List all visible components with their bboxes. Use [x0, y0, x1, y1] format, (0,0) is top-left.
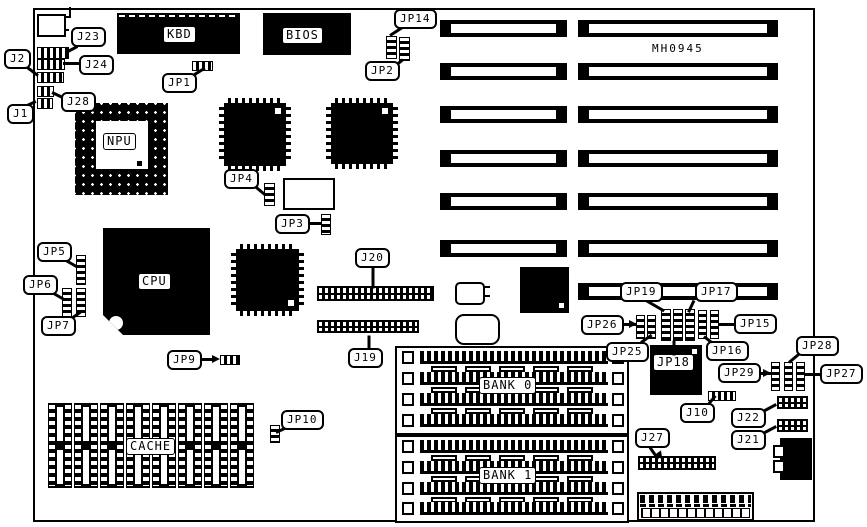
qfp-chip	[231, 244, 304, 316]
isa-slot	[440, 193, 567, 210]
header-jp9	[220, 355, 240, 365]
isa-slot	[578, 240, 778, 257]
leader-line	[673, 341, 676, 356]
leader-line	[372, 268, 375, 289]
isa-slot	[578, 63, 778, 80]
header-j24	[37, 59, 65, 70]
qfp-chip	[219, 98, 291, 171]
jumper-jp10	[270, 425, 280, 443]
jumper-jp18	[673, 309, 683, 341]
header-j20	[317, 286, 434, 301]
isa-slot	[440, 150, 567, 167]
cache-socket	[48, 403, 72, 488]
callout-j23: J23	[71, 27, 106, 47]
kbd-dashed-stripe	[119, 15, 238, 17]
callout-jp5: JP5	[37, 242, 72, 262]
din-lead-line	[69, 7, 71, 18]
leader-line	[804, 373, 820, 376]
isa-slot	[440, 20, 567, 37]
cache-label: CACHE	[126, 438, 175, 455]
callout-jp27: JP27	[820, 364, 863, 384]
cache-socket	[74, 403, 98, 488]
jumper-jp29	[771, 362, 780, 391]
leader-arrowhead	[212, 355, 220, 363]
cache-socket	[100, 403, 124, 488]
header-j2	[37, 72, 64, 83]
din-tab	[773, 445, 785, 458]
jumper-jp4	[264, 183, 275, 206]
callout-j27: J27	[635, 428, 670, 448]
jumper-jp16	[698, 310, 707, 339]
callout-jp3: JP3	[275, 214, 310, 234]
isa-slot	[440, 240, 567, 257]
isa-slot	[440, 106, 567, 123]
leader-line	[310, 222, 322, 225]
jumper-jp19	[661, 309, 671, 341]
callout-j24: J24	[79, 55, 114, 75]
board-model-number: MH0945	[652, 42, 704, 55]
callout-jp6: JP6	[23, 275, 58, 295]
callout-j1: J1	[7, 104, 34, 124]
motherboard-diagram: KBD BIOS MH0945 NPU	[0, 0, 867, 527]
callout-j2: J2	[4, 49, 31, 69]
crystal	[455, 282, 485, 305]
callout-jp2: JP2	[365, 61, 400, 81]
callout-jp1: JP1	[162, 73, 197, 93]
npu-pin1-marker	[137, 161, 142, 166]
jumper-jp14	[386, 36, 397, 59]
component-outline	[455, 314, 500, 345]
callout-jp4: JP4	[224, 169, 259, 189]
callout-jp10: JP10	[281, 410, 324, 430]
cache-socket	[230, 403, 254, 488]
callout-j20: J20	[355, 248, 390, 268]
callout-jp7: JP7	[41, 316, 76, 336]
leader-arrowhead	[763, 369, 771, 377]
isa-slot	[578, 20, 778, 37]
callout-jp28: JP28	[796, 336, 839, 356]
callout-jp29: JP29	[718, 363, 761, 383]
jumper-jp2	[399, 37, 410, 61]
isa-slot	[578, 150, 778, 167]
jumper-jp15	[710, 310, 719, 339]
callout-jp19: JP19	[620, 282, 663, 302]
jp18-chip-label: JP18	[653, 354, 694, 371]
header-j27	[638, 456, 716, 470]
oscillator	[283, 178, 335, 210]
jumper-jp5	[76, 255, 86, 285]
isa-slot	[578, 193, 778, 210]
bank1-label: BANK 1	[479, 467, 536, 484]
jumper-jp17	[685, 309, 695, 341]
cpu-label: CPU	[138, 273, 171, 290]
plcc-chip	[520, 267, 569, 313]
bank0-label: BANK 0	[479, 377, 536, 394]
callout-j19: J19	[348, 348, 383, 368]
keyboard-din-symbol	[37, 14, 66, 37]
din-tab	[773, 460, 785, 473]
callout-jp25: JP25	[606, 342, 649, 362]
bios-chip-label: BIOS	[282, 27, 323, 44]
header-j22	[777, 396, 808, 409]
callout-jp9: JP9	[167, 350, 202, 370]
cache-socket	[204, 403, 228, 488]
cache-socket	[178, 403, 202, 488]
npu-label: NPU	[103, 133, 136, 150]
header-j21	[777, 419, 808, 432]
callout-j22: J22	[731, 408, 766, 428]
callout-j28: J28	[61, 92, 96, 112]
qfp-chip	[326, 98, 398, 169]
leader-line	[63, 62, 79, 65]
callout-j10: J10	[680, 403, 715, 423]
jumper-jp6	[62, 288, 72, 317]
callout-j21: J21	[731, 430, 766, 450]
jumper-jp3	[321, 214, 331, 235]
jumper-jp26	[636, 315, 645, 339]
isa-slot	[440, 63, 567, 80]
leader-line	[719, 323, 734, 326]
kbd-chip-label: KBD	[163, 26, 196, 43]
callout-jp14: JP14	[394, 9, 437, 29]
header-j1	[37, 98, 53, 109]
callout-jp15: JP15	[734, 314, 777, 334]
callout-jp17: JP17	[695, 282, 738, 302]
jumper-jp28	[784, 362, 793, 391]
callout-jp16: JP16	[706, 341, 749, 361]
header-j19	[317, 320, 419, 333]
header-j23	[37, 47, 69, 59]
callout-jp26: JP26	[581, 315, 624, 335]
leader-arrowhead	[629, 320, 637, 328]
isa-slot	[578, 106, 778, 123]
jumper-jp27	[796, 362, 805, 391]
isa-slot	[578, 283, 778, 300]
power-connector	[637, 492, 754, 521]
